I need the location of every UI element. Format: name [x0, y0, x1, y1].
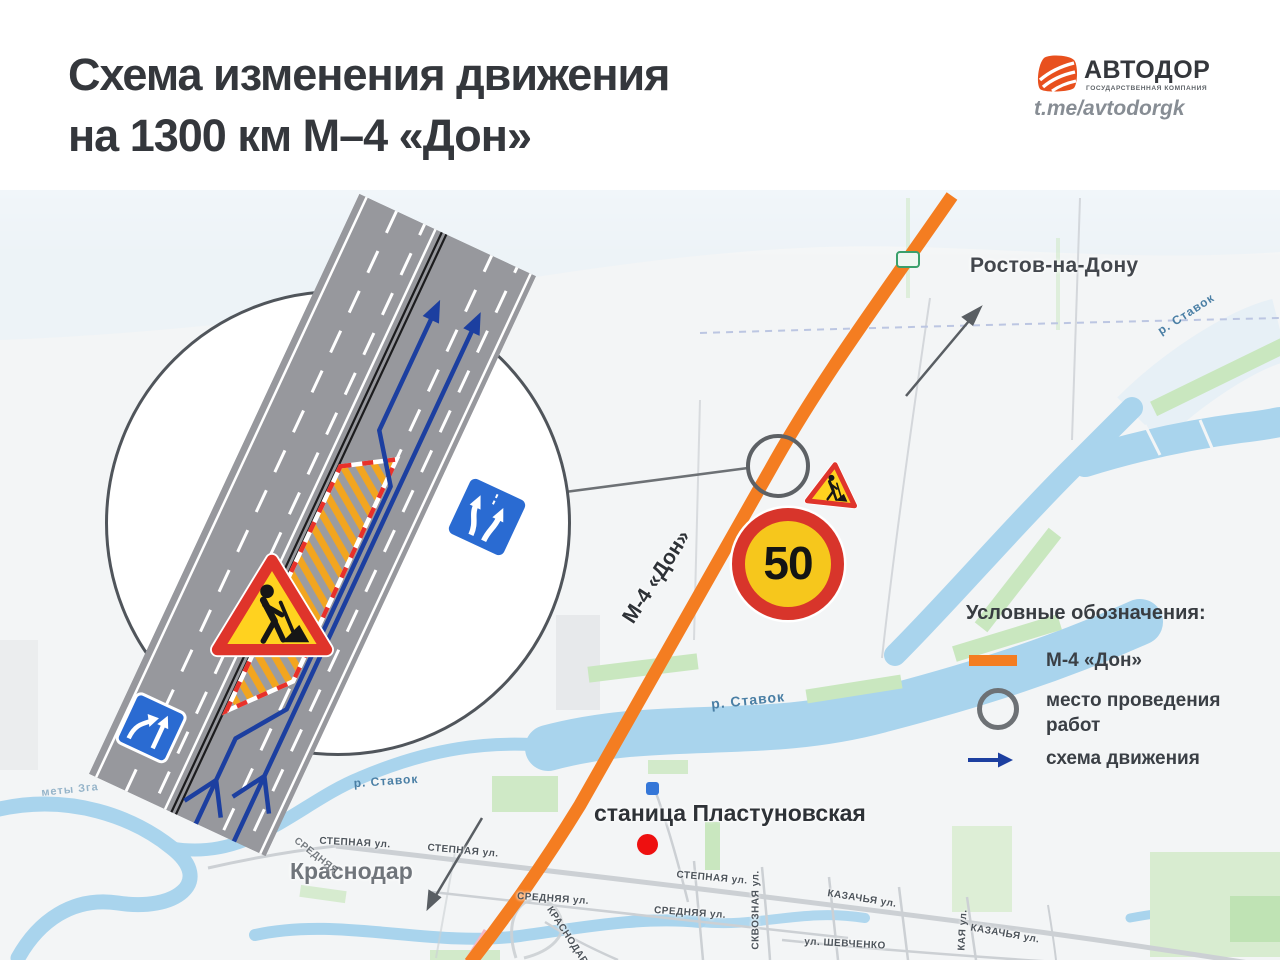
legend-highway-swatch [969, 655, 1017, 666]
roadworks-sign-large [210, 550, 334, 660]
legend-item-label: место проведения работ [1046, 688, 1246, 738]
avtodor-logo-icon [1036, 54, 1078, 94]
legend: Условные обозначения: М-4 «Дон» место пр… [966, 602, 1276, 782]
label-krasnodar: Краснодар [290, 858, 413, 885]
connector-line [565, 468, 748, 492]
legend-arrow-icon [966, 750, 1014, 770]
speed-limit-value: 50 [763, 537, 812, 589]
legend-title: Условные обозначения: [966, 602, 1206, 625]
label-rostov: Ростов-на-Дону [970, 254, 1138, 278]
street-label: КАЯ ул. [956, 909, 969, 951]
map-marker-icon [646, 782, 659, 795]
roadworks-sign-small [804, 457, 863, 510]
street-label: СКВОЗНАЯ ул. [751, 870, 762, 949]
infographic-page: Схема изменения движения на 1300 км М–4 … [0, 0, 1280, 960]
admin-boundary [700, 318, 1280, 333]
speed-limit-sign: 50 [732, 508, 844, 620]
legend-item-label: схема движения [1046, 746, 1200, 771]
label-settlement: станица Пластуновская [594, 800, 866, 827]
road-shield-icon [897, 252, 919, 267]
settlement-dot [637, 834, 658, 855]
legend-item-label: М-4 «Дон» [1046, 648, 1142, 673]
legend-worksite-swatch [977, 688, 1019, 730]
